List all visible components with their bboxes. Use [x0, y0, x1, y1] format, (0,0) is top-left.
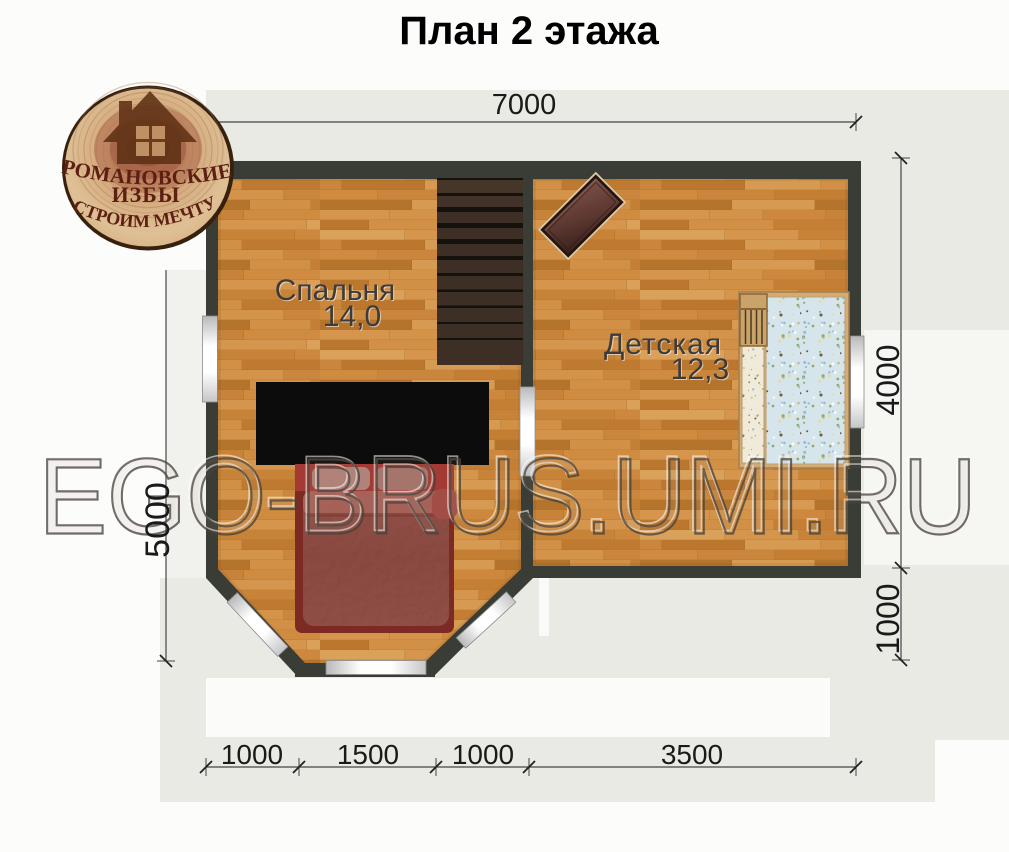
svg-text:1000: 1000: [452, 739, 514, 770]
svg-text:1000: 1000: [870, 583, 906, 654]
svg-text:1500: 1500: [337, 739, 399, 770]
svg-text:EGO-BRUS.UMI.RU: EGO-BRUS.UMI.RU: [38, 434, 976, 555]
svg-text:12,3: 12,3: [671, 353, 729, 386]
svg-text:1000: 1000: [221, 739, 283, 770]
svg-text:3500: 3500: [661, 739, 723, 770]
svg-text:ИЗБЫ: ИЗБЫ: [112, 182, 181, 207]
svg-text:5000: 5000: [139, 482, 177, 558]
svg-text:7000: 7000: [492, 89, 557, 121]
svg-text:14,0: 14,0: [323, 300, 381, 333]
svg-text:План 2 этажа: План 2 этажа: [399, 9, 659, 53]
svg-text:4000: 4000: [870, 344, 906, 415]
